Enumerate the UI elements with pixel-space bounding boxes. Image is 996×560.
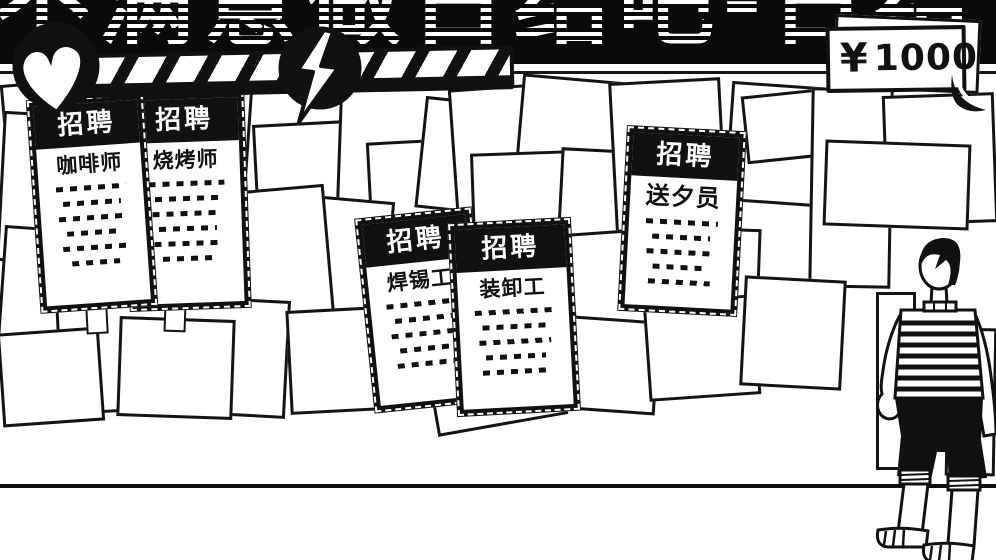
player-shorts [895, 398, 987, 480]
heart-icon [6, 22, 102, 122]
player-character [854, 228, 996, 560]
flyer-details [626, 211, 736, 287]
flyer-coffee[interactable]: 招聘 咖啡师 [26, 92, 159, 314]
flyer-delivery[interactable]: 招聘 送夕员 [617, 125, 747, 317]
flyer-header: 招聘 [631, 132, 739, 180]
flyer-job-title: 送夕员 [629, 175, 737, 217]
flyer-loader[interactable]: 招聘 装卸工 [447, 217, 581, 417]
flyer-header: 招聘 [454, 224, 566, 273]
lightning-badge [272, 24, 364, 128]
money-sign-front: ¥ 1000 [826, 25, 967, 93]
game-scene: 招聘 烧烤师 招聘 咖啡师 招聘 焊锡工 招聘 装卸工 [0, 0, 996, 560]
floor-line [0, 484, 996, 488]
heart-badge [6, 22, 102, 122]
flyer-details [458, 300, 572, 377]
paper [823, 139, 972, 230]
lightning-icon [272, 24, 364, 128]
paper [0, 327, 105, 428]
money-display: ¥ 1000 [826, 22, 978, 100]
currency-symbol: ¥ [830, 38, 874, 81]
flyer-details [38, 175, 148, 268]
page-curl-icon [948, 72, 992, 116]
paper [739, 275, 847, 390]
